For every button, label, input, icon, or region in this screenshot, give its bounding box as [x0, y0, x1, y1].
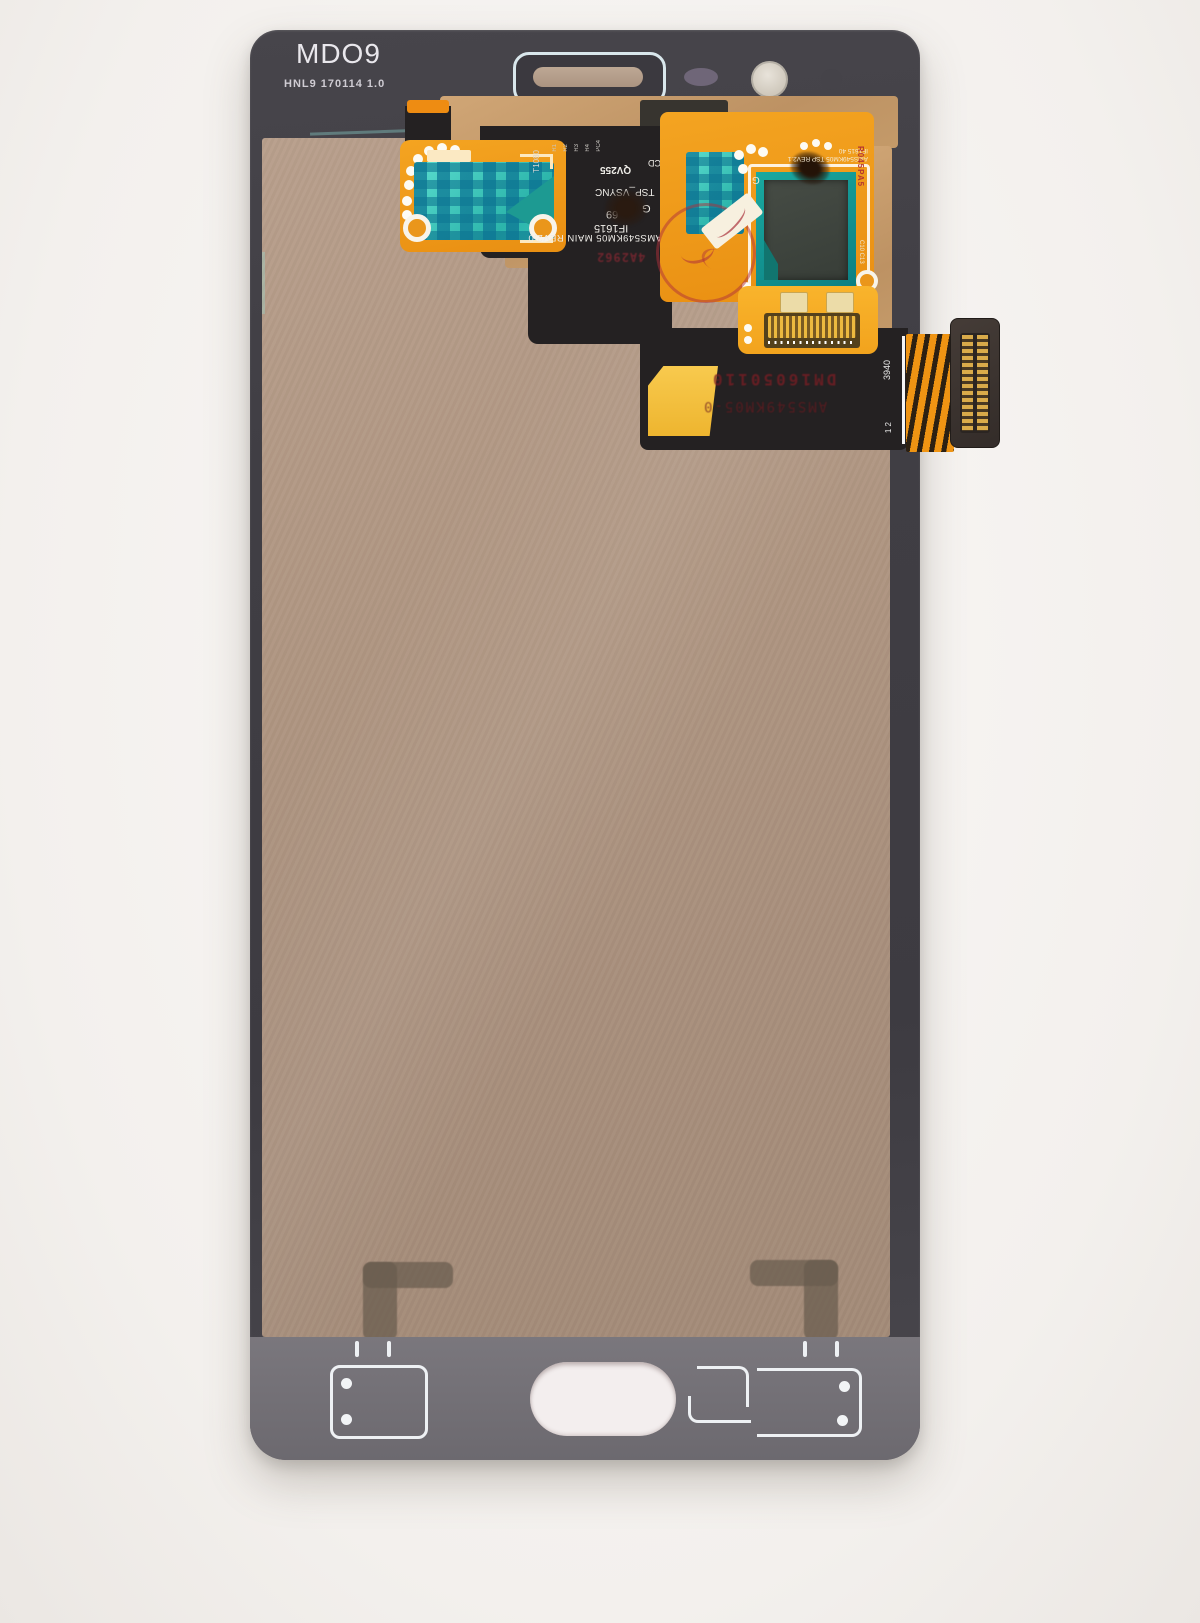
home-button-cutout [530, 1362, 676, 1436]
touch-ic-chip [764, 180, 848, 280]
test-pad [738, 164, 748, 174]
ref-label: R4 [585, 140, 591, 152]
pin-column [977, 335, 988, 431]
model-marking: MDO9 [296, 38, 381, 70]
touch-id-block: AMS549KM05 TSP REV2.1 IF1615 40 [776, 146, 868, 162]
flex-orange-lip [407, 100, 449, 113]
alignment-hole [403, 214, 431, 242]
test-pad [734, 150, 744, 160]
printed-bracket [688, 1396, 751, 1423]
adhesive-mark-right [804, 1260, 838, 1340]
alignment-tick [387, 1341, 391, 1357]
pin-dots-row [768, 341, 856, 344]
adhesive-mark-left [363, 1262, 397, 1340]
printed-dot [341, 1414, 352, 1425]
printed-dot [839, 1381, 850, 1392]
alignment-tick [355, 1341, 359, 1357]
touch-if-code: IF1615 40 [776, 146, 868, 154]
printed-outline-left [330, 1365, 428, 1439]
proximity-sensor-window [684, 68, 718, 86]
label-pad [427, 150, 471, 162]
tail-white-line [902, 336, 905, 444]
ref-label: R2 [563, 140, 569, 152]
touch-grade: G [752, 174, 760, 185]
via-dot [744, 336, 752, 344]
gold-pad [780, 292, 808, 313]
flex-label-board-id: AMS549KM05 MAIN REV2.0 [528, 232, 662, 243]
side-cap-refs: C10 C13 [858, 240, 864, 264]
red-lot-code: 4A2962 [596, 250, 645, 264]
ref-label: R1 [552, 140, 558, 152]
sensor-hole [821, 69, 842, 90]
via-dot [744, 324, 752, 332]
printed-dot [341, 1378, 352, 1389]
side-red-code: R045PA5 [856, 146, 865, 187]
solder-blob [605, 190, 647, 226]
connector-footprint [764, 313, 860, 348]
flex-label-tcode: T1080 [532, 150, 541, 173]
ink-stamp-board: AMS549KM05-0 [702, 398, 827, 414]
pin-column [962, 335, 973, 431]
lcd-screen-assembly-photo: MDO9 HNL9 170114 1.0 [250, 30, 920, 1460]
gold-pad [826, 292, 854, 313]
connector-teeth [768, 316, 856, 338]
test-pad [746, 144, 756, 154]
test-pad [402, 196, 412, 206]
touch-board-id: AMS549KM05 TSP REV2.1 [776, 154, 868, 162]
connector-footprint-pad [738, 286, 878, 354]
printed-outline-right [757, 1368, 862, 1437]
flex-tail [906, 334, 954, 452]
tail-pin-label: 1 2 [884, 422, 893, 433]
bottom-bezel-strip [250, 1337, 920, 1460]
printed-dot [837, 1415, 848, 1426]
front-camera-hole [751, 61, 788, 98]
resistor-refs: R1 R2 R3 R4 PC4 [552, 140, 602, 152]
batch-marking: HNL9 170114 1.0 [284, 78, 385, 90]
film-edge-glint [262, 252, 265, 314]
tail-number: 3940 [882, 360, 892, 380]
ink-stamp-serial: DM16050110 [710, 370, 836, 389]
earpiece-mesh [533, 67, 643, 87]
test-pad [758, 147, 768, 157]
test-pad [404, 180, 414, 190]
ref-label: PC4 [596, 140, 602, 152]
alignment-tick [835, 1341, 839, 1357]
connector-pin-field [960, 333, 990, 433]
board-connector [950, 318, 1000, 448]
ref-label: R3 [574, 140, 580, 152]
ic-teal-sliver [764, 240, 778, 280]
alignment-tick [803, 1341, 807, 1357]
flex-label-qv: QV255 [600, 164, 631, 175]
